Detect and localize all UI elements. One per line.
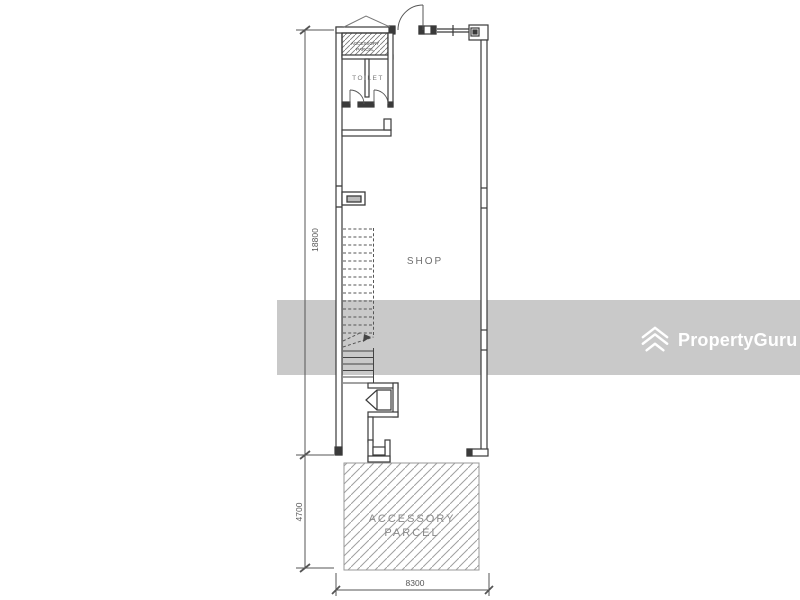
- accessory-parcel-area: ACCESSORY PARCEL: [344, 463, 479, 570]
- dimension-height-main: 18800: [310, 228, 320, 252]
- accessory-parcel-top: ACCESSORY PARCEL: [342, 16, 390, 57]
- door-leaf-symbol: [366, 390, 391, 410]
- partition-wall: [342, 119, 391, 136]
- shop-label: SHOP: [407, 256, 443, 267]
- watermark-brand-text: PropertyGuru: [678, 330, 797, 351]
- accessory-bottom-label-line2: PARCEL: [384, 527, 439, 539]
- stairs-upper: [343, 228, 374, 347]
- toilet-label: TOILET: [352, 75, 384, 82]
- rear-door-frame: [368, 440, 390, 462]
- floorplan-image: 18800 4700 8300: [0, 0, 800, 600]
- shop-walls: [335, 25, 488, 456]
- watermark-logo: PropertyGuru: [640, 324, 797, 356]
- dimension-width: 8300: [406, 578, 425, 588]
- accessory-top-label-line2: PARCEL: [356, 47, 374, 52]
- floor-plan: 18800 4700 8300: [0, 0, 800, 600]
- accessory-top-label-line1: ACCESSORY: [351, 41, 379, 46]
- stair-door-bay: [366, 383, 398, 442]
- dimension-height-accessory: 4700: [294, 502, 304, 521]
- accessory-bottom-label-line1: ACCESSORY: [369, 513, 456, 525]
- stairs-lower: [343, 348, 374, 384]
- propertyguru-house-icon: [640, 325, 670, 355]
